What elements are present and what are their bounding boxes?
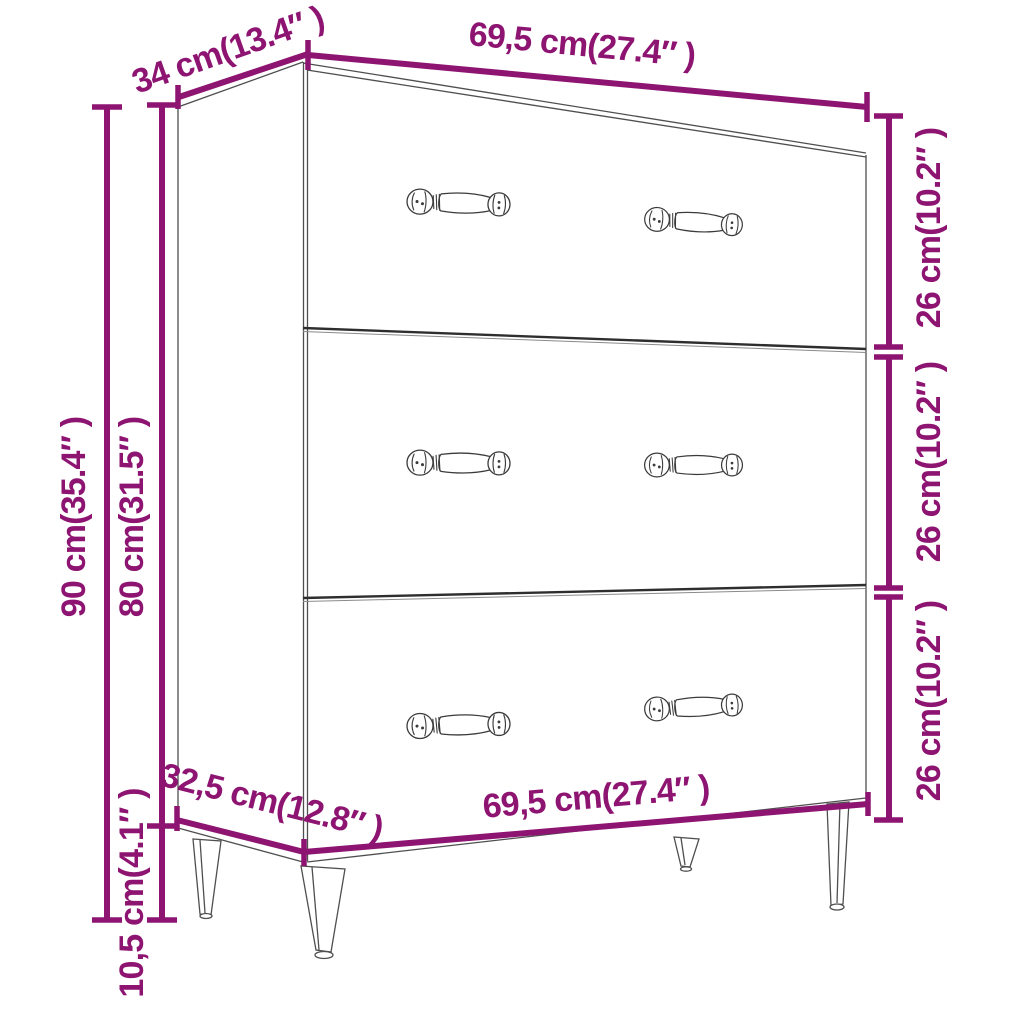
handle-drawer2-left <box>407 450 510 476</box>
dim-line-top-width <box>308 55 867 122</box>
leg-back-left <box>193 839 221 919</box>
dim-line-drawer2-height <box>874 357 903 588</box>
handle-drawer1-right <box>644 207 743 238</box>
dim-line-drawer3-height <box>874 597 903 820</box>
handle-drawer3-right <box>644 693 743 722</box>
drawer-separator-1 <box>303 328 866 353</box>
dim-line-drawer1-height <box>874 116 903 347</box>
front-left-edge <box>304 62 308 862</box>
drawer-handles <box>407 189 744 739</box>
drawer-separator-2 <box>303 585 866 602</box>
dim-line-body-height <box>147 105 177 826</box>
dimension-diagram: 34 cm(13.4″ ) 69,5 cm(27.4″ ) 90 cm(35.4… <box>0 0 1024 1024</box>
leg-front-left <box>301 866 345 959</box>
label-total-height: 90 cm(35.4″ ) <box>57 417 91 618</box>
label-drawer1-height: 26 cm(10.2″ ) <box>912 128 946 329</box>
label-drawer3-height: 26 cm(10.2″ ) <box>912 601 946 802</box>
leg-front-right <box>827 802 849 910</box>
handle-drawer1-left <box>407 189 511 218</box>
top-panel <box>303 63 866 157</box>
handle-drawer2-right <box>645 453 743 477</box>
sideboard-illustration <box>0 0 1024 1024</box>
label-leg-height: 10,5 cm(4.1″ ) <box>115 788 149 997</box>
side-panel <box>178 62 303 862</box>
dim-line-leg-height <box>147 827 177 920</box>
leg-back-right <box>674 837 699 871</box>
label-drawer2-height: 26 cm(10.2″ ) <box>912 362 946 563</box>
cabinet-outline <box>178 62 866 862</box>
label-body-height: 80 cm(31.5″ ) <box>115 417 149 618</box>
handle-drawer3-left <box>407 711 511 739</box>
